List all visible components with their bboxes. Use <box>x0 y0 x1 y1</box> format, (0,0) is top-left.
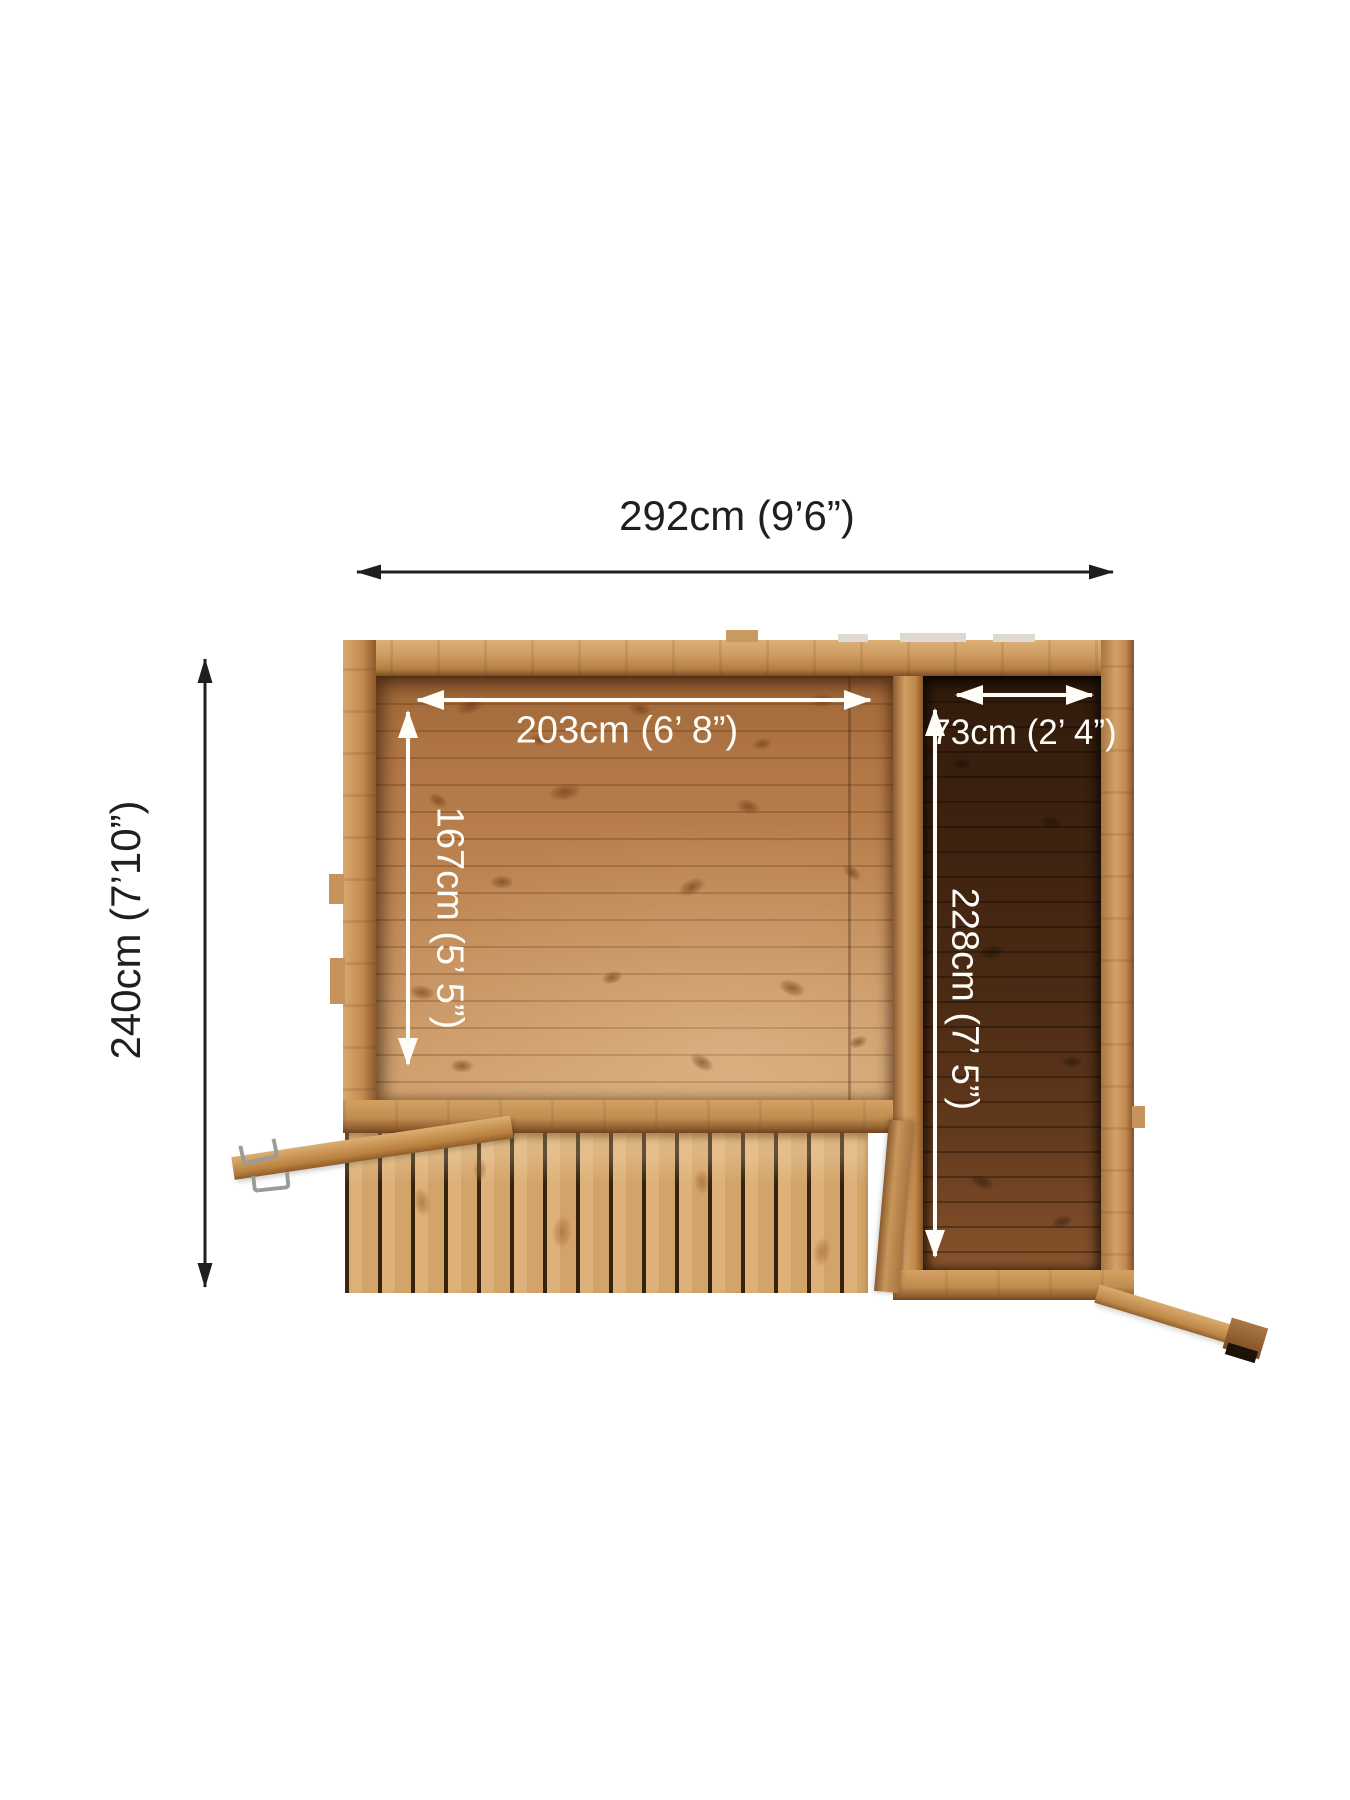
left-wall <box>343 640 376 1133</box>
roof-trim <box>838 634 868 642</box>
back-wall <box>343 640 1133 676</box>
floor-seam <box>848 676 851 1100</box>
open-door-right <box>1094 1284 1260 1351</box>
hinge-tab <box>329 874 344 904</box>
roof-trim <box>993 634 1035 642</box>
roof-trim <box>900 633 966 642</box>
side-depth-label: 228cm (7’ 5”) <box>943 888 986 1110</box>
roof-tab <box>726 630 758 642</box>
main-width-label: 203cm (6’ 8”) <box>516 710 738 753</box>
main-depth-label: 167cm (5’ 5”) <box>428 807 471 1029</box>
overall-width-label: 292cm (9’6”) <box>619 492 855 540</box>
metal-hook-icon <box>251 1172 291 1193</box>
hinge-tab <box>330 958 345 1004</box>
hinge-tab <box>1132 1106 1145 1128</box>
shed-dimension-diagram: 292cm (9’6”) 240cm (7’10”) 203cm (6’ 8”)… <box>0 0 1350 1800</box>
front-slatted-deck <box>345 1133 868 1293</box>
side-width-label: 73cm (2’ 4”) <box>931 713 1116 753</box>
overall-depth-label: 240cm (7’10”) <box>102 800 150 1059</box>
